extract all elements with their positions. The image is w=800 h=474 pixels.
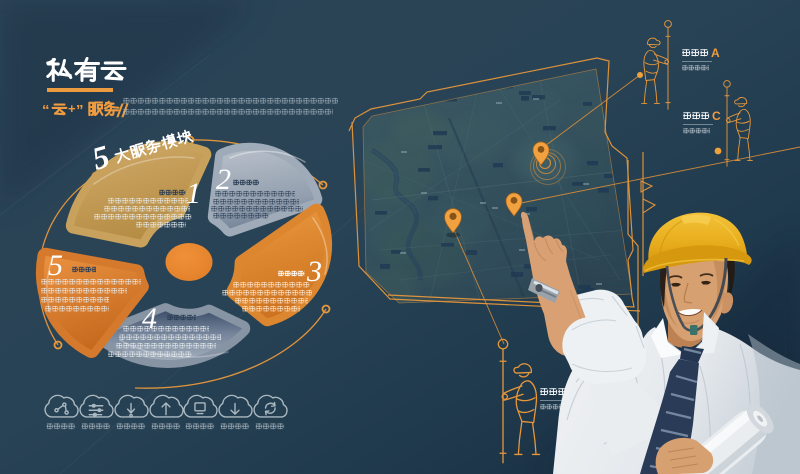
- svg-text:”: ”: [76, 102, 84, 119]
- svg-text:C: C: [712, 109, 721, 123]
- svg-text:+: +: [68, 101, 76, 116]
- svg-text:5: 5: [48, 249, 63, 282]
- svg-text:“: “: [42, 102, 50, 119]
- svg-text:A: A: [711, 46, 720, 60]
